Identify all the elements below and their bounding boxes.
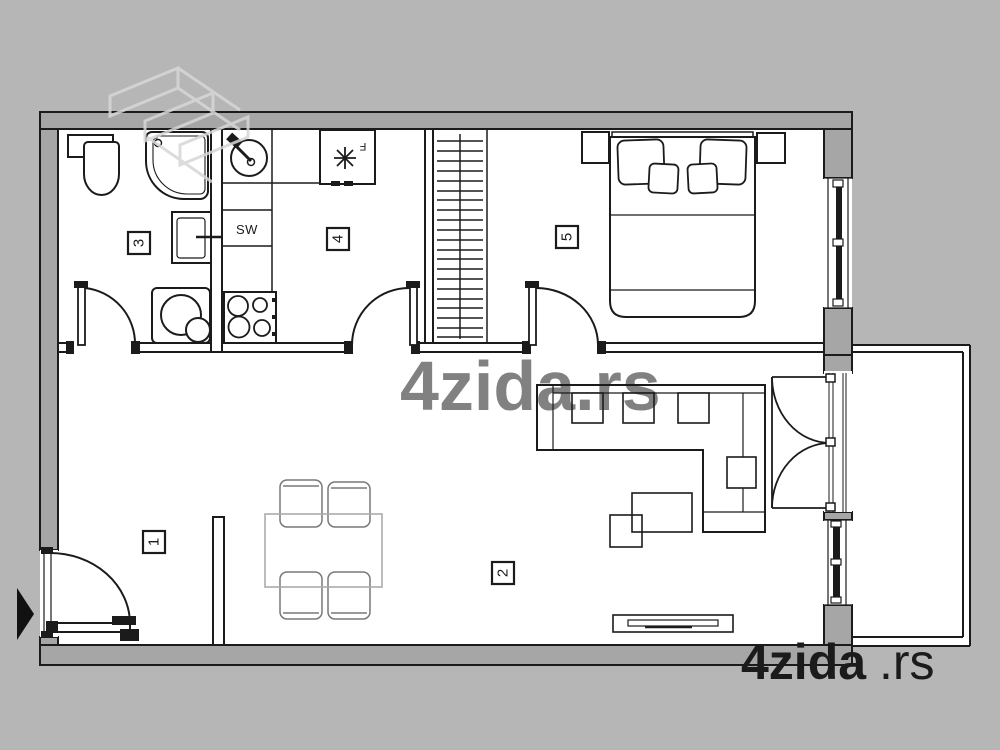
toilet-bowl	[84, 142, 119, 195]
room-number-5: 5	[559, 233, 576, 241]
watermark: 4zida .rs	[741, 634, 935, 690]
floor-plan-canvas: F SW	[0, 0, 1000, 750]
wall-right-c	[824, 355, 852, 373]
nightstand-right	[757, 133, 785, 163]
balcony	[852, 345, 970, 646]
room-number-1: 1	[146, 538, 163, 546]
nightstand-left	[582, 132, 609, 163]
partition-segment	[135, 343, 211, 352]
watermark-tld: .rs	[879, 634, 935, 690]
tv-stand	[613, 615, 733, 632]
freezer-star-icon	[334, 147, 356, 169]
partition-bathroom-kitchen	[211, 129, 222, 352]
watermark-brand: 4zida	[741, 634, 867, 690]
bedroom	[582, 132, 785, 317]
wall-right-d	[824, 512, 852, 520]
bedroom-window	[824, 178, 852, 308]
wall-right-a	[824, 129, 852, 178]
kitchen-unit-label: SW	[236, 222, 258, 237]
partition-segment	[222, 343, 352, 352]
partition-closet-wall	[425, 129, 433, 343]
floor-plan-image: F SW	[0, 0, 1000, 750]
room-number-2: 2	[495, 569, 512, 577]
fridge-label: F	[359, 140, 366, 152]
center-watermark: 4zida.rs	[400, 347, 661, 425]
room-number-4: 4	[330, 235, 347, 243]
wall-right-b	[824, 308, 852, 355]
wall-bottom	[40, 645, 852, 665]
living-room-window	[824, 520, 852, 605]
partition-dining-stub	[213, 517, 224, 645]
wall-left	[40, 129, 58, 550]
fridge	[320, 130, 375, 184]
room-number-3: 3	[131, 239, 148, 247]
